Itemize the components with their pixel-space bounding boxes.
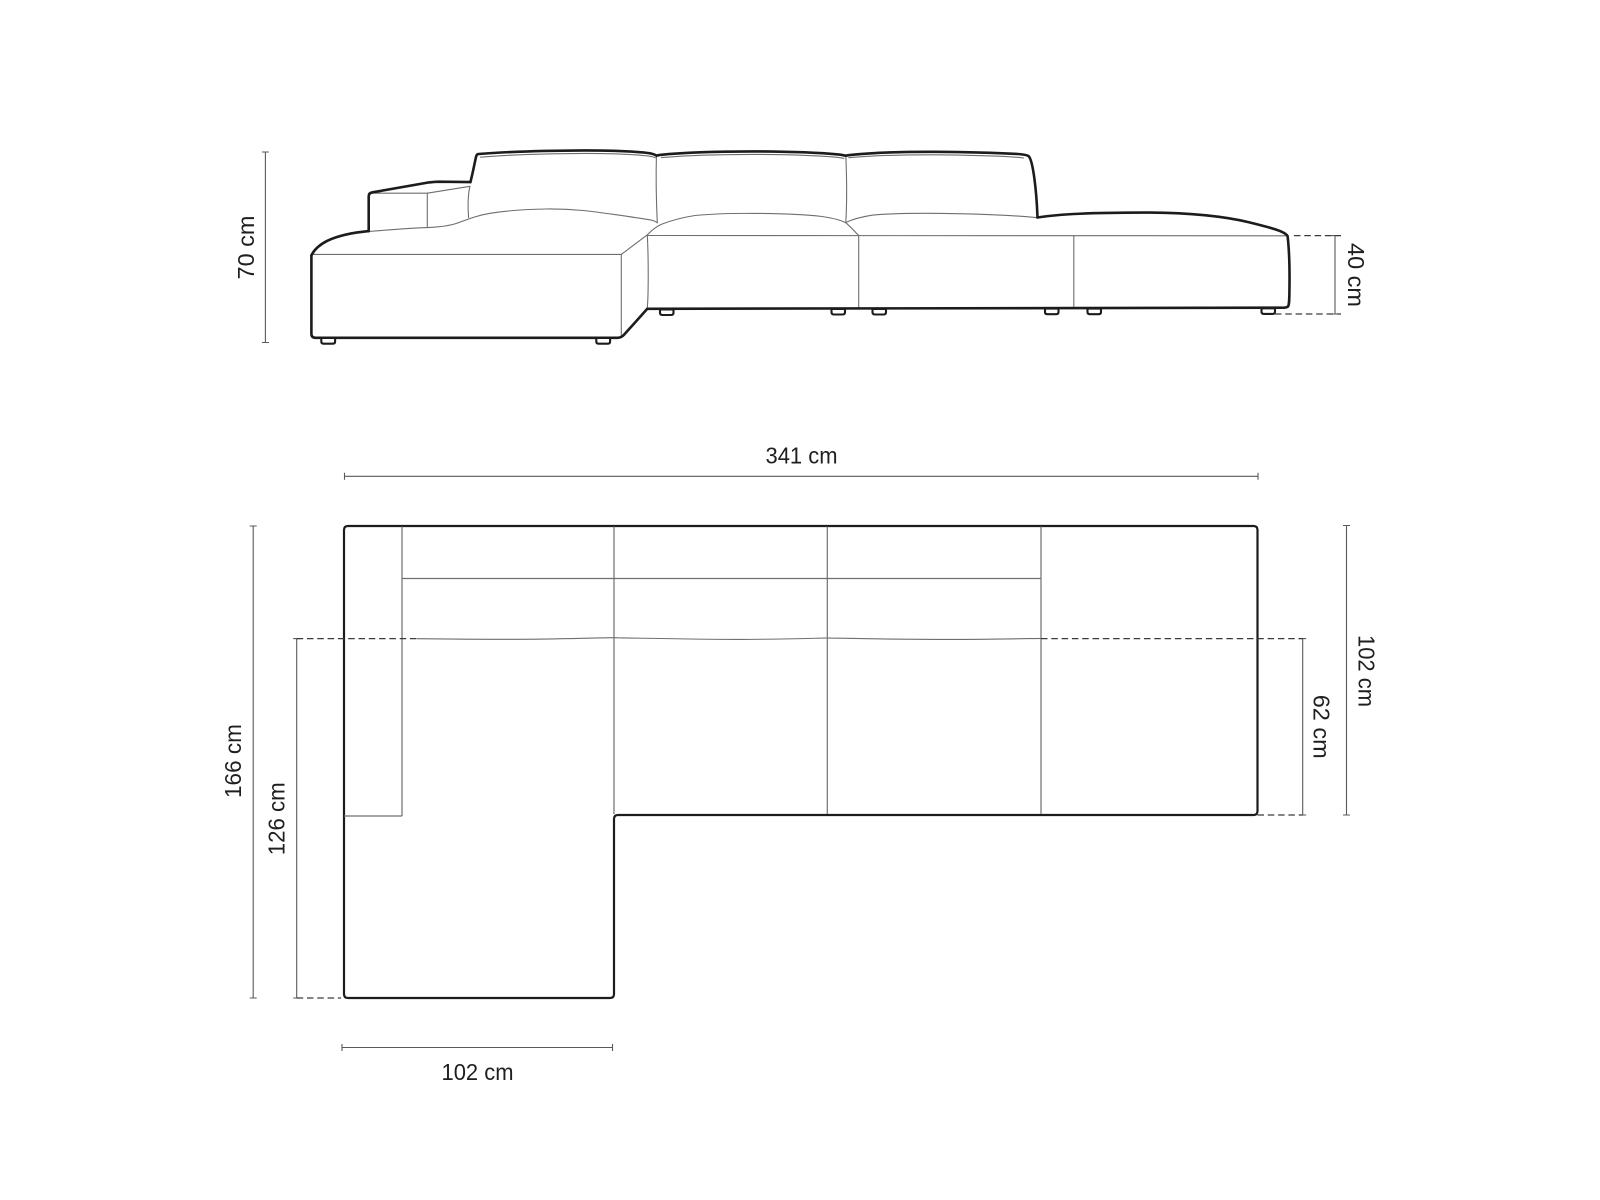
svg-text:102 cm: 102 cm — [442, 1059, 514, 1085]
svg-text:341 cm: 341 cm — [766, 443, 838, 469]
svg-text:62 cm: 62 cm — [1309, 695, 1335, 759]
svg-text:40 cm: 40 cm — [1343, 243, 1369, 307]
svg-text:166 cm: 166 cm — [220, 724, 246, 798]
svg-text:102 cm: 102 cm — [1353, 635, 1379, 707]
svg-text:70 cm: 70 cm — [233, 215, 259, 279]
svg-text:126 cm: 126 cm — [264, 782, 290, 855]
